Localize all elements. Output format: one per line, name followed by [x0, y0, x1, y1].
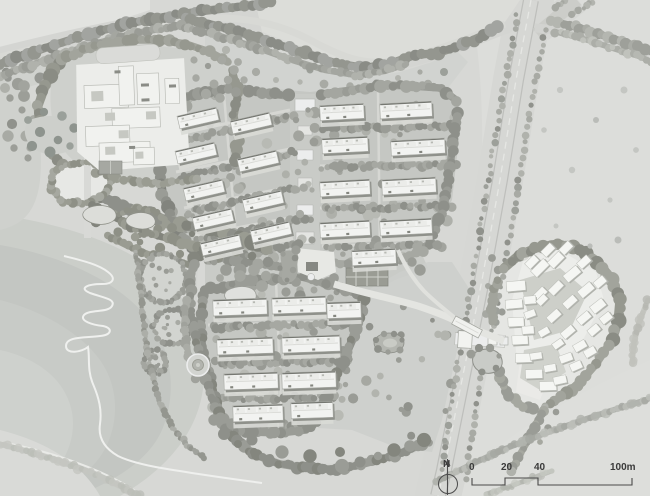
- svg-text:N: N: [443, 459, 450, 470]
- svg-text:100m: 100m: [610, 462, 636, 473]
- svg-text:0: 0: [469, 462, 475, 473]
- svg-text:20: 20: [501, 462, 513, 473]
- svg-text:40: 40: [534, 462, 546, 473]
